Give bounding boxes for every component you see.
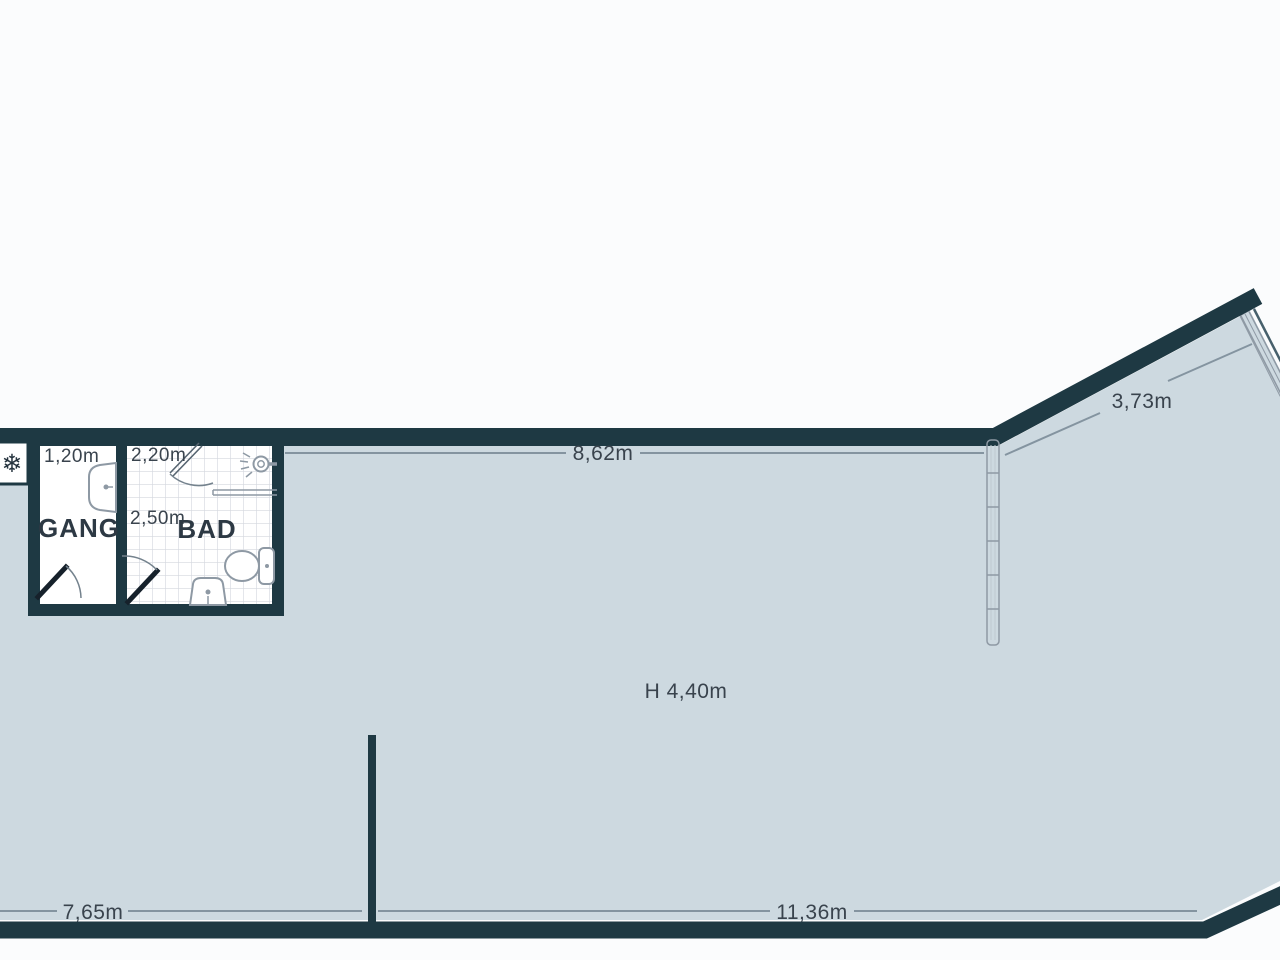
dim-angled-wall-label: 3,73m [1112, 390, 1173, 413]
dim-top-wall-label: 8,62m [573, 442, 634, 465]
dim-bottom-left-label: 7,65m [63, 901, 124, 924]
room-gang-label: GANG [38, 513, 120, 543]
bathroom-sink [190, 578, 226, 605]
snowflake-icon: ❄ [2, 450, 23, 478]
dim-gang-width-label: 1,20m [44, 446, 99, 467]
dim-bad-width-label: 2,20m [131, 445, 186, 466]
dim-bottom-right-label: 11,36m [776, 901, 848, 924]
partition-wall [368, 735, 376, 925]
freezer-box: ❄ [0, 442, 28, 484]
floor-plan-drawing: ❄ [0, 0, 1280, 960]
floor-plan: ❄ [0, 0, 1280, 960]
toilet [225, 548, 274, 584]
ceiling-height-label: H 4,40m [645, 680, 728, 703]
gang-sink [89, 463, 116, 512]
room-bad-label: BAD [177, 514, 236, 544]
